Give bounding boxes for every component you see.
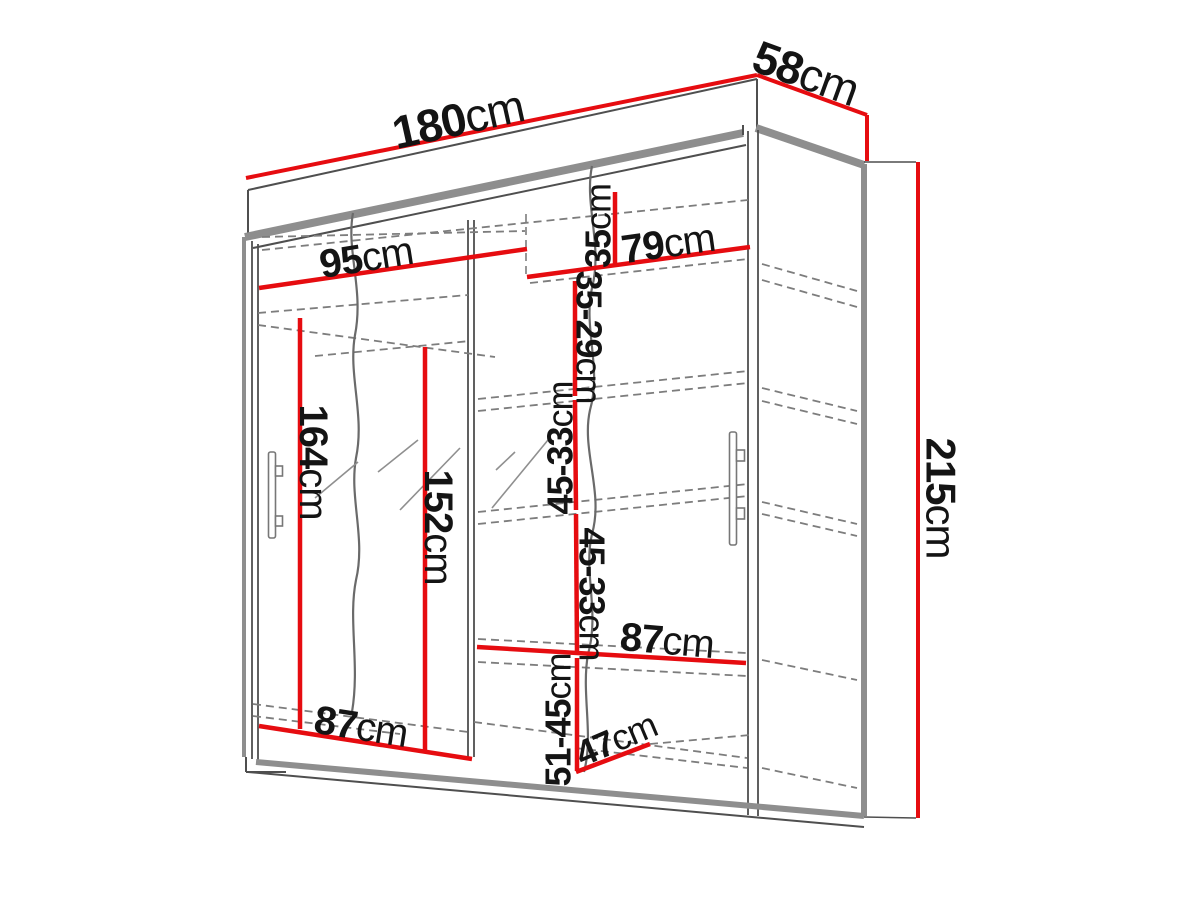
dim-label-bottom-right-section: 51-45cm <box>538 653 579 786</box>
dim-label-bottom-shelf-depth: 47cm <box>569 704 662 775</box>
dim-label-mirror-height: 152cm <box>416 469 460 584</box>
dim-label-bottom-left-shelf-width: 87cm <box>311 698 411 756</box>
dim-label-right-shelf-width: 87cm <box>618 615 715 667</box>
dim-label-left-hanging-height: 164cm <box>291 404 335 519</box>
dim-label-total-depth: 58cm <box>746 30 866 116</box>
dim-label-mid-right-upper: 45-33cm <box>540 381 581 514</box>
dim-label-top-shelf-left: 95cm <box>316 229 416 287</box>
dim-label-mid-right-lower: 45-33cm <box>571 527 612 660</box>
left-door-handle <box>269 452 283 538</box>
dim-label-total-height: 215cm <box>917 437 964 558</box>
right-door-handle <box>730 432 745 545</box>
dim-label-top-section-height: 35cm <box>578 184 619 268</box>
wardrobe-dimension-diagram: 180cm 58cm 215cm 95cm 79cm 35cm 35-29cm … <box>0 0 1200 900</box>
dim-label-total-width: 180cm <box>387 79 528 159</box>
diagram-canvas: 180cm 58cm 215cm 95cm 79cm 35cm 35-29cm … <box>0 0 1200 900</box>
